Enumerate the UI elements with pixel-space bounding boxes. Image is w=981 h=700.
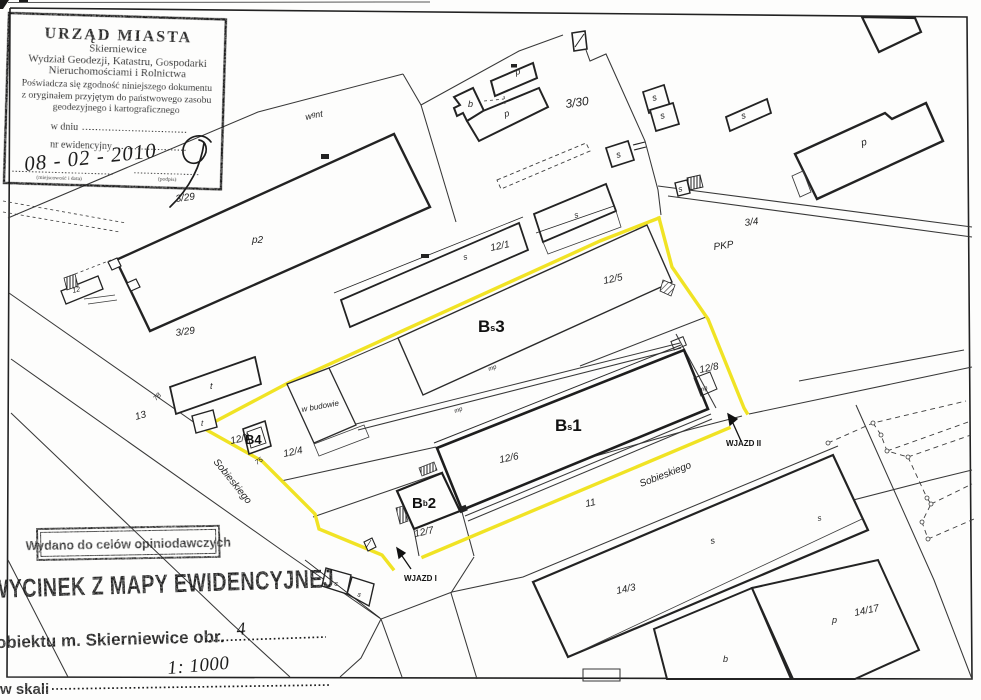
svg-text:(podpis): (podpis) bbox=[158, 175, 177, 183]
svg-text:w dniu: w dniu bbox=[50, 121, 78, 133]
svg-text:p2: p2 bbox=[251, 235, 264, 246]
svg-text:(miejscowość i data): (miejscowość i data) bbox=[36, 174, 82, 182]
svg-text:3/4: 3/4 bbox=[744, 216, 760, 229]
svg-text:WJAZD II: WJAZD II bbox=[726, 439, 761, 448]
svg-text:4: 4 bbox=[236, 618, 247, 639]
svg-text:B4: B4 bbox=[245, 432, 262, 447]
svg-text:b: b bbox=[723, 654, 728, 664]
svg-text:p: p bbox=[831, 615, 837, 625]
svg-text:WJAZD I: WJAZD I bbox=[404, 574, 437, 583]
svg-text:w skali: w skali bbox=[0, 681, 49, 698]
svg-text:b: b bbox=[468, 99, 473, 109]
